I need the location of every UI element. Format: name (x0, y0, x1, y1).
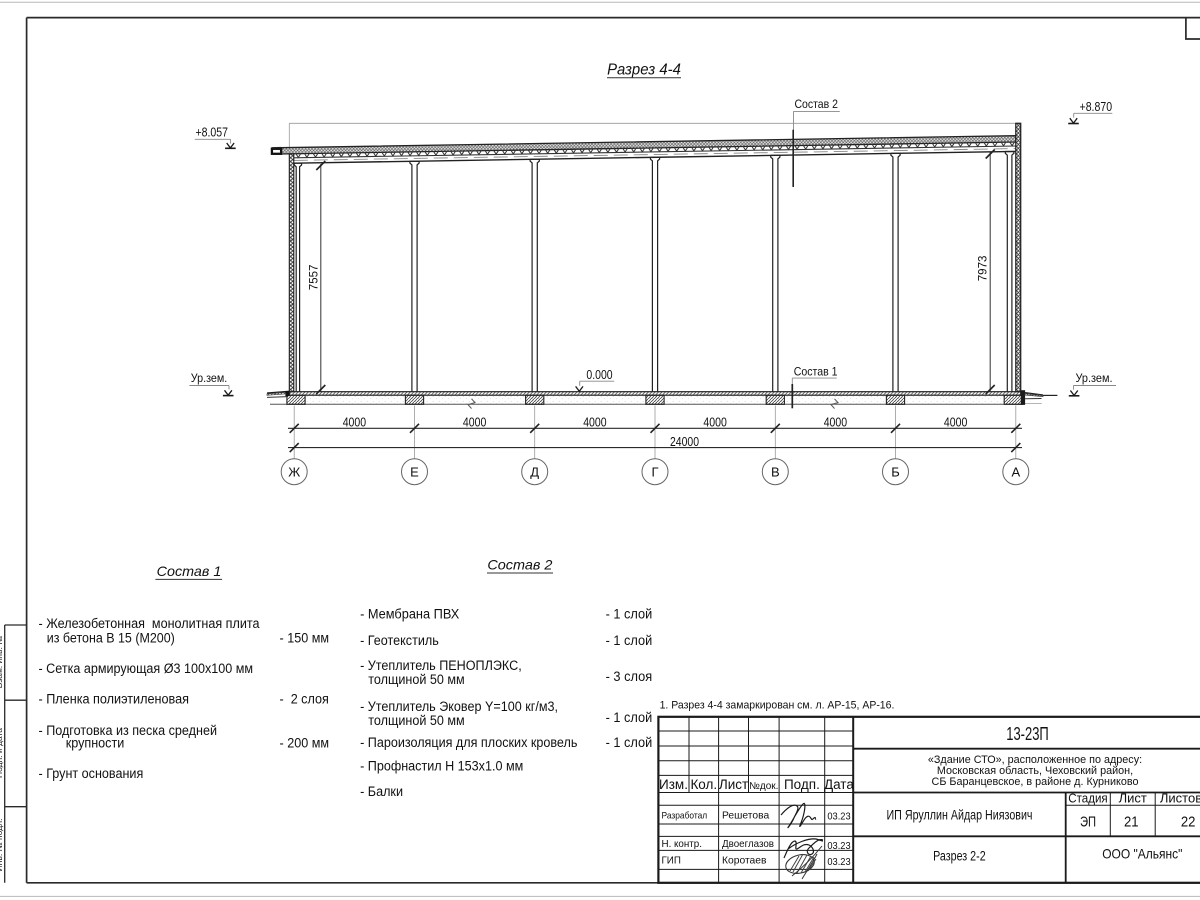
svg-text:- Железобетонная монолитная п: - Железобетонная монолитная плита (39, 616, 261, 631)
svg-text:ЭП: ЭП (1080, 815, 1096, 831)
svg-text:Состав 1: Состав 1 (157, 563, 222, 579)
svg-text:Состав 1: Состав 1 (794, 365, 838, 379)
svg-text:Изм.: Изм. (659, 777, 688, 792)
svg-text:1. Разрез 4-4 замаркирован см.: 1. Разрез 4-4 замаркирован см. л. АР-15,… (660, 699, 895, 711)
svg-text:- 3 слоя: - 3 слоя (606, 669, 653, 684)
svg-text:7973: 7973 (978, 256, 990, 282)
svg-text:Кол.: Кол. (690, 777, 717, 792)
svg-text:21: 21 (1124, 815, 1139, 831)
svg-text:из бетона В 15 (М200): из бетона В 15 (М200) (47, 631, 175, 646)
svg-text:+8.057: +8.057 (195, 124, 228, 139)
svg-text:- Утеплитель ПЕНОПЛЭКС,: - Утеплитель ПЕНОПЛЭКС, (360, 658, 522, 673)
svg-text:- 1 слой: - 1 слой (606, 710, 653, 725)
svg-text:№док.: №док. (749, 781, 778, 792)
svg-text:ГИП: ГИП (662, 856, 681, 867)
svg-text:4000: 4000 (944, 414, 967, 429)
svg-text:- 1 слой: - 1 слой (606, 606, 653, 621)
svg-text:03.23: 03.23 (827, 857, 851, 868)
svg-text:Двоеглазов: Двоеглазов (722, 839, 775, 850)
svg-text:13-23П: 13-23П (1006, 724, 1049, 744)
svg-text:Ур.зем.: Ур.зем. (1076, 371, 1113, 385)
svg-text:Д: Д (530, 464, 539, 479)
svg-text:- Утеплитель Эковер Y=100 кг/м: - Утеплитель Эковер Y=100 кг/м3, (360, 699, 558, 714)
svg-text:Б: Б (891, 464, 900, 479)
svg-text:Ж: Ж (288, 464, 300, 479)
svg-text:Листов: Листов (1160, 791, 1200, 806)
svg-text:- Грунт основания: - Грунт основания (39, 766, 144, 781)
svg-text:- 150 мм: - 150 мм (280, 631, 330, 646)
svg-text:- Профнастил Н 153х1.0 мм: - Профнастил Н 153х1.0 мм (360, 759, 523, 774)
svg-text:толщиной 50 мм: толщиной 50 мм (368, 713, 464, 728)
svg-text:Коротаев: Коротаев (722, 856, 767, 867)
svg-text:- Балки: - Балки (360, 784, 403, 799)
svg-text:- Мембрана ПВХ: - Мембрана ПВХ (360, 606, 459, 621)
svg-text:Стадия: Стадия (1068, 791, 1107, 806)
svg-text:4000: 4000 (824, 414, 847, 429)
svg-text:Г: Г (651, 464, 658, 479)
svg-text:4000: 4000 (463, 414, 486, 429)
svg-text:4000: 4000 (583, 414, 606, 429)
svg-text:- 1 слой: - 1 слой (606, 633, 653, 648)
svg-text:Дата: Дата (824, 777, 854, 792)
svg-text:24000: 24000 (670, 434, 699, 449)
svg-text:4000: 4000 (343, 414, 366, 429)
svg-text:ИП Яруллин Айдар Ниязович: ИП Яруллин Айдар Ниязович (887, 807, 1033, 823)
svg-text:- 2 слоя: - 2 слоя (280, 692, 329, 707)
svg-text:7557: 7557 (309, 265, 321, 291)
svg-text:- Пленка полиэтиленовая: - Пленка полиэтиленовая (39, 692, 190, 707)
svg-text:Разрез 4-4: Разрез 4-4 (607, 62, 681, 79)
svg-text:4000: 4000 (703, 414, 726, 429)
svg-text:СБ Баранцевское, в районе д. К: СБ Баранцевское, в районе д. Курниково (932, 776, 1139, 788)
svg-text:- Пароизоляция для плоских кро: - Пароизоляция для плоских кровель (360, 735, 577, 750)
svg-text:Решетова: Решетова (722, 811, 769, 822)
svg-text:Подп.: Подп. (784, 777, 820, 792)
svg-text:толщиной 50 мм: толщиной 50 мм (368, 672, 464, 687)
svg-text:ООО "Альянс": ООО "Альянс" (1102, 846, 1182, 862)
svg-text:Состав 2: Состав 2 (487, 556, 552, 572)
svg-text:Е: Е (410, 464, 419, 479)
svg-text:- 200 мм: - 200 мм (280, 735, 330, 750)
svg-text:- 1 слой: - 1 слой (606, 735, 653, 750)
svg-text:В: В (771, 464, 780, 479)
svg-text:03.23: 03.23 (827, 841, 851, 852)
svg-text:Разрез 2-2: Разрез 2-2 (933, 849, 986, 864)
svg-text:+8.870: +8.870 (1080, 99, 1113, 114)
svg-text:- Сетка армирующая Ø3 100х100: - Сетка армирующая Ø3 100х100 мм (39, 661, 254, 676)
svg-text:Разработал: Разработал (662, 811, 708, 822)
svg-text:Н. контр.: Н. контр. (662, 839, 702, 850)
svg-text:22: 22 (1181, 815, 1196, 831)
svg-text:0.000: 0.000 (586, 367, 612, 382)
svg-text:Ур.зем.: Ур.зем. (191, 371, 228, 385)
svg-text:Лист: Лист (1119, 791, 1147, 806)
svg-text:крупности: крупности (66, 735, 125, 750)
svg-text:03.23: 03.23 (827, 812, 851, 823)
svg-text:- Геотекстиль: - Геотекстиль (360, 633, 439, 648)
svg-text:А: А (1011, 464, 1020, 479)
svg-text:Лист: Лист (719, 777, 748, 792)
svg-text:Состав 2: Состав 2 (794, 97, 838, 111)
